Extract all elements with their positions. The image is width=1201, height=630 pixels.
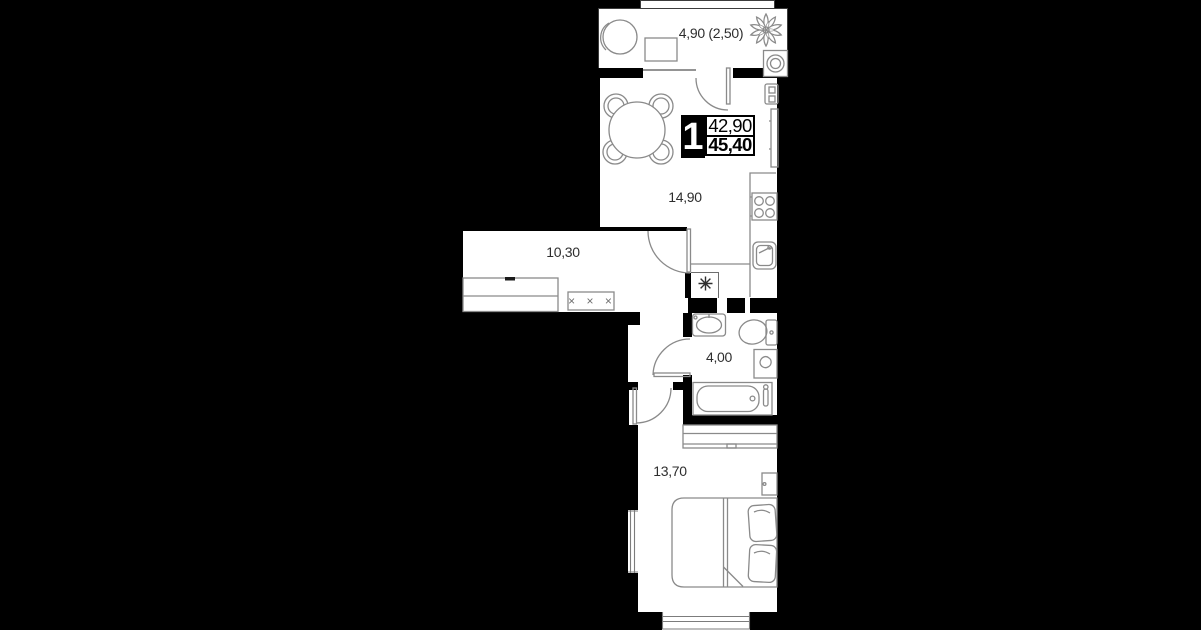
hallway-area-label: 10,30 xyxy=(546,244,580,260)
kitchen-sink-icon xyxy=(753,242,776,269)
hall-wardrobe-icon xyxy=(463,277,558,312)
kitchen-living-area-label: 14,90 xyxy=(668,189,702,205)
unit-areas: 42,90 45,40 xyxy=(705,115,755,158)
bedroom-bottom-window-lines xyxy=(662,612,750,630)
balcony-door xyxy=(696,68,730,110)
cabinet-panel-icon xyxy=(769,109,778,167)
unit-badge: 1 42,90 45,40 xyxy=(681,115,755,158)
boiler-icon xyxy=(754,350,777,379)
toilet-icon xyxy=(737,317,777,347)
dining-set-icon xyxy=(603,94,673,164)
floor-plan: 4,90 (2,50) 14,90 10,30 4,00 13,70 × × ×… xyxy=(0,0,1201,630)
balcony-area-label: 4,90 (2,50) xyxy=(679,25,743,41)
bedroom-area-label: 13,70 xyxy=(653,463,687,479)
kitchen-counter-line xyxy=(691,173,776,297)
bathroom-area-label: 4,00 xyxy=(706,349,732,365)
bedroom-door xyxy=(633,388,671,424)
closet-outline xyxy=(691,273,719,299)
plant-icon xyxy=(750,14,782,46)
bedroom-side-window-lines xyxy=(628,510,638,573)
shaft-asterisk-icon xyxy=(699,277,713,291)
bedroom-wardrobe-icon xyxy=(683,425,777,448)
bathtub-icon xyxy=(693,383,772,416)
stove-icon xyxy=(750,193,778,220)
hallway-door xyxy=(648,229,691,273)
bed-icon xyxy=(672,498,777,587)
unit-area-lower: 45,40 xyxy=(705,135,755,157)
furniture-layer xyxy=(0,0,1201,630)
unit-rooms-count: 1 xyxy=(681,115,705,158)
hanger-marks: × × × xyxy=(568,294,616,308)
nightstand-icon xyxy=(762,473,777,495)
balcony-stool-icon xyxy=(764,51,788,77)
balcony-chair-icon xyxy=(601,20,637,54)
bathroom-sink-icon xyxy=(693,314,726,336)
bathroom-door xyxy=(653,339,690,377)
fridge-icon xyxy=(765,84,778,104)
balcony-table-icon xyxy=(645,38,677,61)
